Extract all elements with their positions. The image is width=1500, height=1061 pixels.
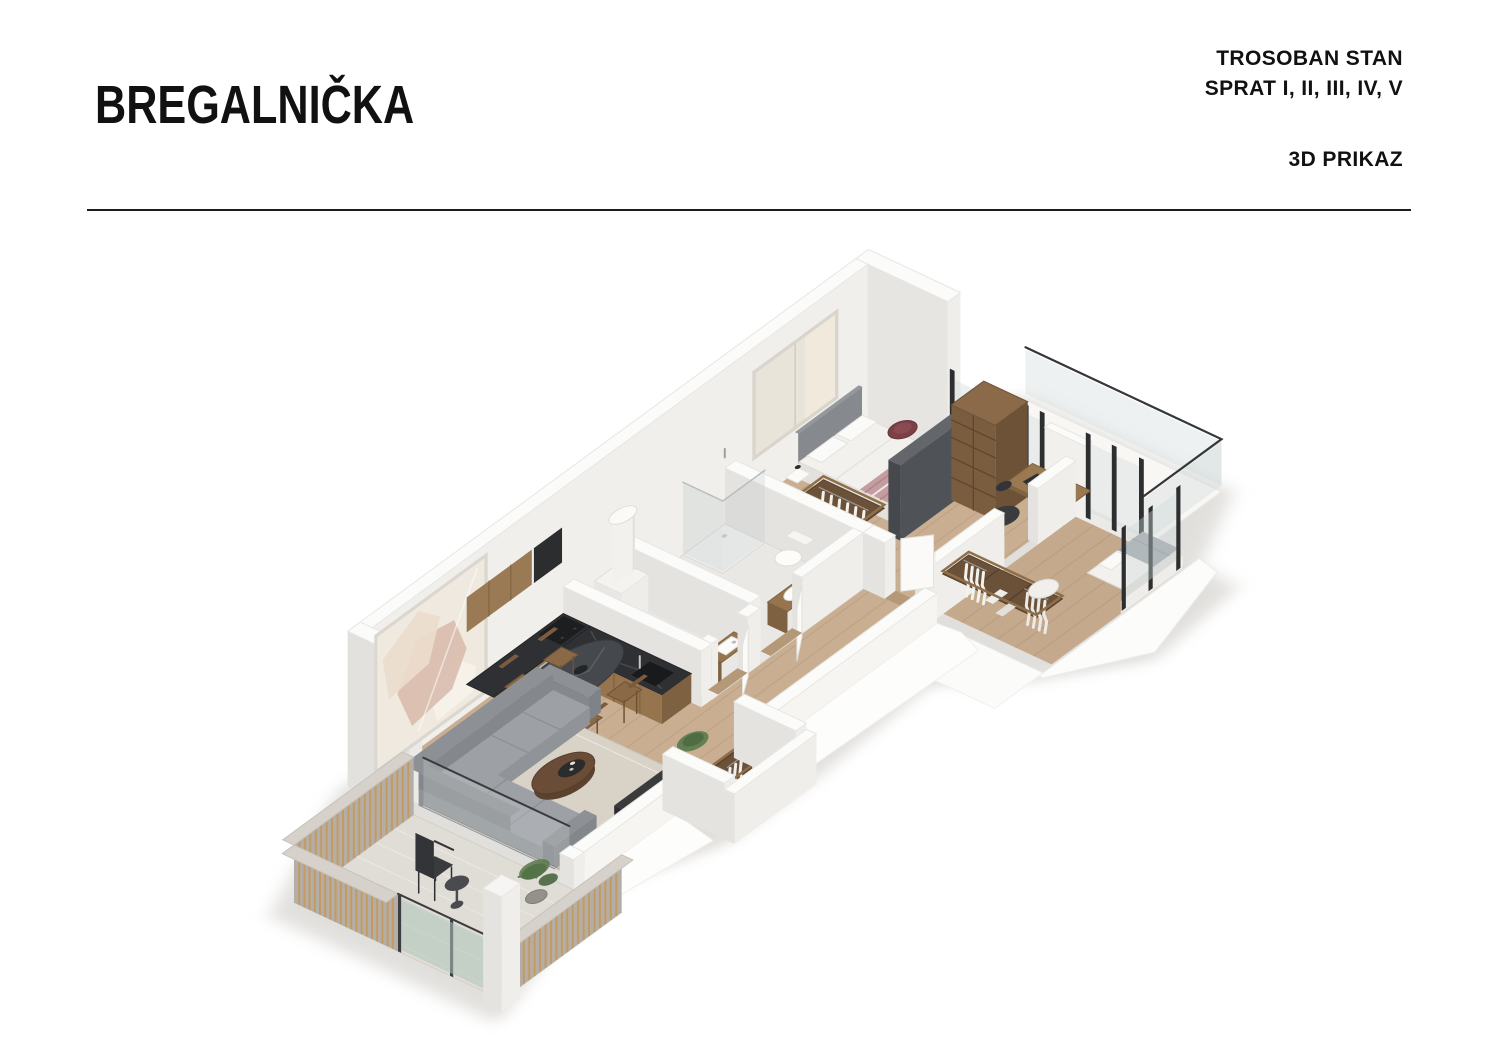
page-title: BREGALNIČKA bbox=[95, 74, 414, 136]
view-label: 3D PRIKAZ bbox=[1205, 148, 1403, 172]
floors-label: SPRAT I, II, III, IV, V bbox=[1205, 74, 1403, 104]
page: BREGALNIČKA TROSOBAN STAN SPRAT I, II, I… bbox=[0, 0, 1500, 1061]
header-info: TROSOBAN STAN SPRAT I, II, III, IV, V 3D… bbox=[1205, 44, 1403, 172]
floorplan-3d-view bbox=[0, 230, 1500, 1061]
unit-type-label: TROSOBAN STAN bbox=[1205, 44, 1403, 74]
divider-rule bbox=[87, 209, 1411, 211]
scene bbox=[80, 249, 1385, 1061]
floorplan-3d-svg bbox=[0, 230, 1500, 1061]
